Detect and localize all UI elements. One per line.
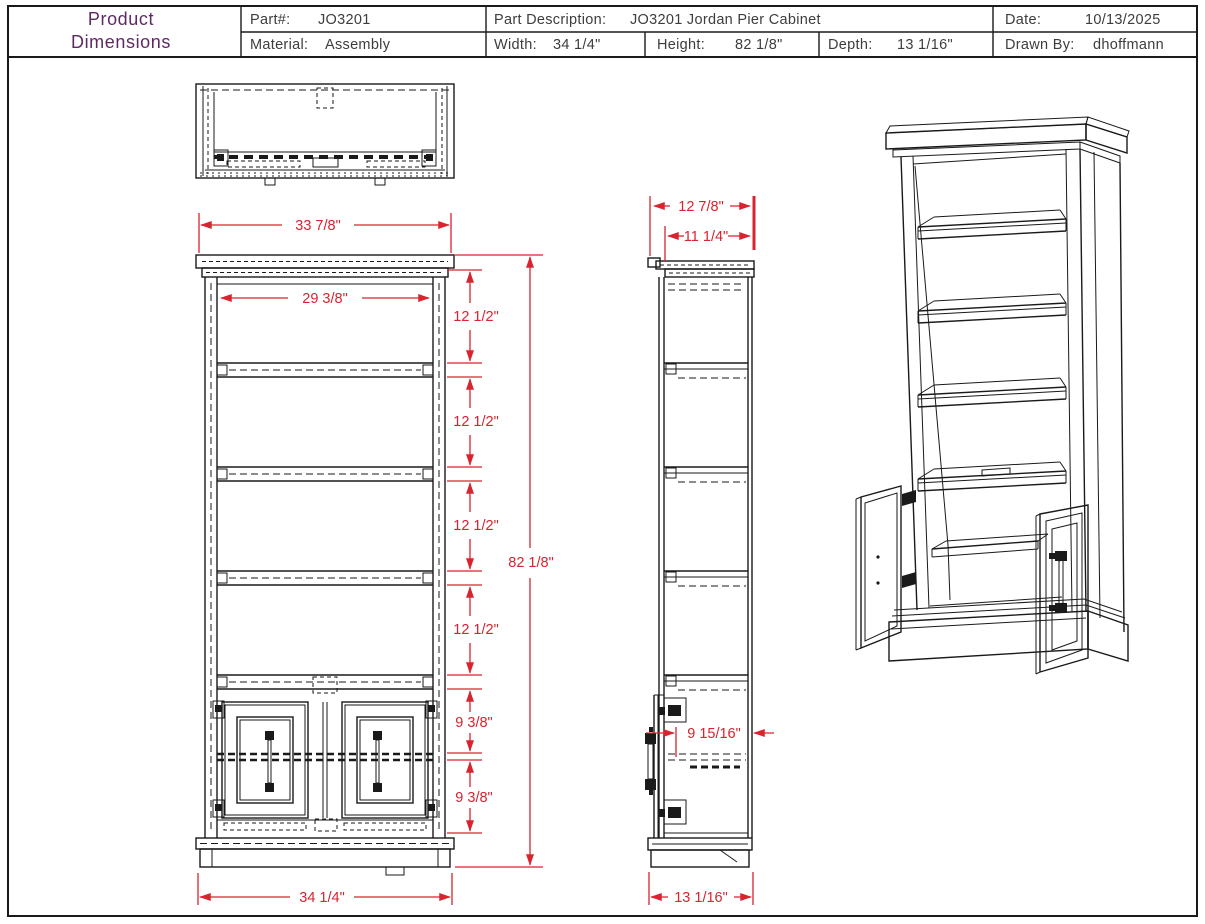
material-label: Material:: [250, 37, 308, 53]
iso-left-door: [856, 486, 916, 650]
date-value: 10/13/2025: [1085, 12, 1161, 28]
dim-front-opening-width: 29 3/8": [302, 291, 347, 307]
height-label: Height:: [657, 37, 705, 53]
sheet-title-line1: Product: [88, 9, 154, 29]
depth-value: 13 1/16": [897, 37, 953, 53]
isometric-view: [856, 117, 1129, 674]
dim-total-height: 82 1/8": [508, 555, 553, 571]
iso-base: [889, 599, 1128, 661]
date-label: Date:: [1005, 12, 1041, 28]
door-catch: [313, 677, 337, 693]
side-base: [648, 838, 752, 867]
iso-shelves: [918, 210, 1066, 491]
technical-drawing: Product Dimensions Part#: JO3201 Part De…: [0, 0, 1205, 924]
dim-front-top-width: 33 7/8": [295, 218, 340, 234]
dim-side-base-depth: 13 1/16": [674, 890, 728, 906]
side-door-profile: [645, 695, 686, 838]
dim-side-top-depth: 12 7/8": [678, 199, 723, 215]
dim-shelf-spacing-4: 12 1/2": [453, 622, 498, 638]
front-dimensions: 33 7/8" 29 3/8" 12 1/2" 12 1/2" 12 1/2" …: [198, 213, 554, 906]
iso-right-door: [1036, 505, 1088, 674]
drawn-by-value: dhoffmann: [1093, 37, 1164, 53]
width-label: Width:: [494, 37, 537, 53]
iso-interior: [930, 534, 1062, 606]
material-value: Assembly: [325, 37, 391, 53]
part-label: Part#:: [250, 12, 291, 28]
dim-side-door-depth: 9 15/16": [687, 726, 741, 742]
dim-shelf-spacing-1: 12 1/2": [453, 309, 498, 325]
front-base: [196, 838, 454, 875]
depth-label: Depth:: [828, 37, 873, 53]
width-value: 34 1/4": [553, 37, 601, 53]
dim-base-width: 34 1/4": [299, 890, 344, 906]
top-view: [196, 84, 454, 185]
front-shelves: [217, 363, 433, 689]
sheet-title-line2: Dimensions: [71, 32, 171, 52]
part-value: JO3201: [318, 12, 371, 28]
description-label: Part Description:: [494, 12, 606, 28]
front-view: [196, 255, 454, 875]
drawing-sheet: Product Dimensions Part#: JO3201 Part De…: [0, 0, 1205, 924]
dim-door-opening-2: 9 3/8": [455, 790, 492, 806]
description-value: JO3201 Jordan Pier Cabinet: [630, 12, 821, 28]
dim-door-opening-1: 9 3/8": [455, 715, 492, 731]
drawn-by-label: Drawn By:: [1005, 37, 1075, 53]
dim-shelf-spacing-3: 12 1/2": [453, 518, 498, 534]
dim-side-body-depth: 11 1/4": [684, 229, 728, 245]
height-value: 82 1/8": [735, 37, 783, 53]
dim-shelf-spacing-2: 12 1/2": [453, 414, 498, 430]
side-shelves: [664, 363, 748, 690]
side-view: [645, 258, 754, 867]
